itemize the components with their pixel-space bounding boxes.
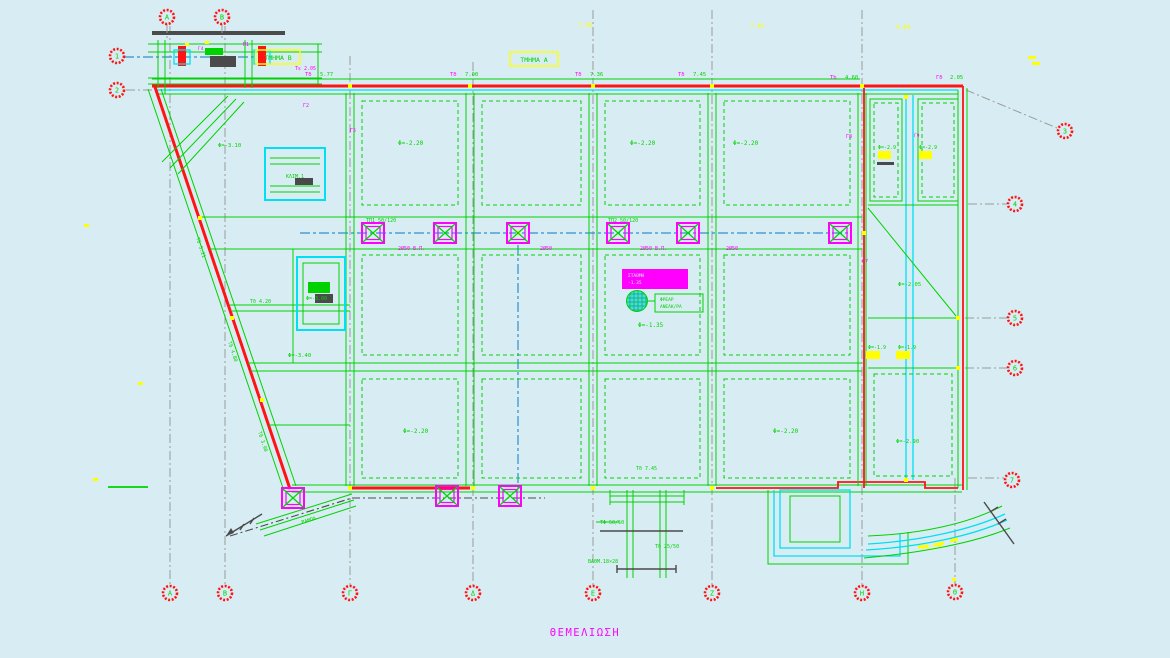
top-left-block <box>148 24 322 94</box>
section-box-b-label: ΤΜΗΜΑ Β <box>264 54 291 62</box>
annotation-26: Φ=-2.90 <box>896 439 919 445</box>
pile-cap-8 <box>282 488 304 508</box>
panel-slabs <box>362 101 850 478</box>
grid-marker-label: 2 <box>115 87 119 95</box>
grid-marker-Β-1: Β <box>218 586 232 600</box>
grid-marker-Ζ-5: Ζ <box>705 586 719 600</box>
annotation-45: ΒΑΘΜ.18×28 <box>588 559 618 565</box>
bore-circle <box>627 291 648 312</box>
annotation-10: 7.45 <box>693 72 706 78</box>
grid-marker-3-12: 3 <box>1058 124 1072 138</box>
annotation-37: Τδ 5.21 <box>194 237 206 259</box>
annotation-46: Τδ 25/50 <box>655 544 679 550</box>
annotation-27: Φ=-2.9 <box>878 145 896 151</box>
annotation-2: 4.60 <box>896 24 911 31</box>
annotation-33: 2Ø50 Β.Π. <box>398 245 425 252</box>
annotation-0: 7.36 <box>578 22 593 29</box>
annotation-24: Φ=-3.40 <box>288 353 311 359</box>
pile-cap-6 <box>436 486 458 506</box>
grid-marker-label: Θ <box>953 589 957 597</box>
grid-marker-Α-8: Α <box>160 10 174 24</box>
grid-marker-label: Ε <box>591 590 595 598</box>
annotations: 7.367.454.60Τδ5.77Τδ7.00Τδ7.36Τδ7.45Τb4.… <box>194 22 963 565</box>
annotation-28: Φ=-2.9 <box>919 145 937 151</box>
annotation-51: Γ9 <box>914 133 920 139</box>
grid-marker-label: 4 <box>1013 201 1017 209</box>
annotation-40: ΦΡΕΑΡ <box>660 297 674 303</box>
annotation-25: Φ=-2.05 <box>898 282 921 288</box>
grid-marker-label: 3 <box>1063 128 1067 136</box>
annotation-19: ΚΛΙΜ.1 <box>286 174 304 180</box>
annotation-29: Φ=-1.9 <box>868 345 886 351</box>
foundation-plan-drawing: ΤΜΗΜΑ Β ΤΜΗΜΑ Α ΑΒΓΔΕΖΗΘΑΒ1234567 <box>0 0 1170 658</box>
grid-marker-Η-6: Η <box>855 586 869 600</box>
annotation-55: Γ4 <box>198 46 204 52</box>
annotation-50: Γ8 <box>846 134 852 140</box>
annotation-16: Φ=-2.20 <box>630 140 656 147</box>
grid-marker-Α-0: Α <box>163 586 177 600</box>
annotation-7: Τδ <box>575 72 582 78</box>
annotation-9: Τδ <box>678 72 685 78</box>
annotation-14: 2.05 <box>950 75 963 81</box>
annotation-20: Φ=-3.60 <box>306 296 327 302</box>
section-box-a: ΤΜΗΜΑ Α <box>510 52 558 66</box>
annotation-43: -1.35 <box>628 280 642 286</box>
grid-marker-7-16: 7 <box>1005 473 1019 487</box>
annotation-53: Γ2 <box>303 103 309 109</box>
grid-marker-Θ-7: Θ <box>948 585 962 599</box>
annotation-56: Τε 2.05 <box>295 66 316 72</box>
grid-marker-Δ-3: Δ <box>466 586 480 600</box>
grid-marker-Β-9: Β <box>215 10 229 24</box>
annotation-15: Φ=-2.20 <box>398 140 424 147</box>
grid-marker-label: Δ <box>471 590 476 598</box>
annotation-34: 2Ø50 <box>540 245 552 252</box>
annotation-36: 2Ø50 <box>726 245 738 252</box>
drawing-title: ΘΕΜΕΛΙΩΣΗ <box>550 627 620 639</box>
annotation-3: Τδ <box>305 72 312 78</box>
annotation-5: Τδ <box>450 72 457 78</box>
annotation-18: Φ=-3.10 <box>218 143 241 149</box>
annotation-1: 7.45 <box>750 23 765 30</box>
annotation-12: 4.60 <box>845 75 858 81</box>
grid-marker-2-11: 2 <box>110 83 124 97</box>
grid-marker-label: Β <box>220 14 224 22</box>
elevator-shaft <box>297 257 345 330</box>
grid-marker-label: Α <box>165 14 170 22</box>
annotation-42: ΣΤΑΘΜΗ <box>628 273 645 279</box>
grid-axis-lines <box>126 10 1057 585</box>
grid-marker-Γ-2: Γ <box>343 586 357 600</box>
grid-marker-1-10: 1 <box>110 49 124 63</box>
grid-marker-label: Γ <box>348 590 352 598</box>
annotation-4: 5.77 <box>320 72 333 78</box>
grid-marker-label: Α <box>168 590 173 598</box>
annotation-54: Π1 <box>243 42 249 48</box>
bottom-right-wing <box>768 490 1014 564</box>
grid-marker-label: Β <box>223 590 227 598</box>
grid-marker-label: 7 <box>1010 477 1014 485</box>
annotation-30: Φ=-1.9 <box>898 345 916 351</box>
annotation-47: Τδ 7.45 <box>636 466 657 472</box>
annotation-58: Τδ 4.20 <box>250 299 271 305</box>
grid-marker-Ε-4: Ε <box>586 586 600 600</box>
foundation-plan-canvas: ΤΜΗΜΑ Β ΤΜΗΜΑ Α ΑΒΓΔΕΖΗΘΑΒ1234567 <box>0 0 1170 658</box>
section-box-a-label: ΤΜΗΜΑ Α <box>520 56 547 64</box>
strip-foundations <box>162 93 866 486</box>
annotation-41: ΑΝΕΛΚ/ΡΑ <box>660 304 682 310</box>
annotation-23: Φ=-2.20 <box>773 428 799 435</box>
dimension-ticks <box>84 41 1040 581</box>
annotation-31: ΤΠ1 50/120 <box>366 218 396 224</box>
annotation-35: 2Ø50 Β.Π. <box>640 245 667 252</box>
bottom-left-ramp <box>108 487 356 536</box>
grid-marker-label: 5 <box>1013 315 1017 323</box>
annotation-48: ΡΑΜΠΑ <box>301 516 317 526</box>
grid-marker-label: 1 <box>115 53 119 61</box>
main-outline <box>148 79 967 492</box>
annotation-11: Τb <box>830 75 837 81</box>
annotation-32: ΤΠ2 50/120 <box>608 218 638 224</box>
annotation-52: Γ5 <box>350 128 356 134</box>
grid-marker-4-13: 4 <box>1008 197 1022 211</box>
grid-marker-6-15: 6 <box>1008 361 1022 375</box>
pile-cap-7 <box>499 486 521 506</box>
grid-marker-label: Ζ <box>710 590 714 598</box>
annotation-6: 7.00 <box>465 72 478 78</box>
grid-marker-5-14: 5 <box>1008 311 1022 325</box>
annotation-13: Γδ <box>936 75 943 81</box>
annotation-17: Φ=-2.20 <box>733 140 759 147</box>
centerlines <box>124 57 850 536</box>
annotation-39: Τδ 3.90 <box>256 431 268 453</box>
grid-marker-label: Η <box>860 590 864 598</box>
pile-caps <box>282 223 851 508</box>
grid-marker-label: 6 <box>1013 365 1017 373</box>
annotation-21: Φ=-1.35 <box>638 322 664 329</box>
annotation-8: 7.36 <box>590 72 603 78</box>
annotation-22: Φ=-2.20 <box>403 428 429 435</box>
annotation-57: Γ7 <box>862 259 868 265</box>
annotation-44: ΤΦ 50/50 <box>600 520 624 526</box>
